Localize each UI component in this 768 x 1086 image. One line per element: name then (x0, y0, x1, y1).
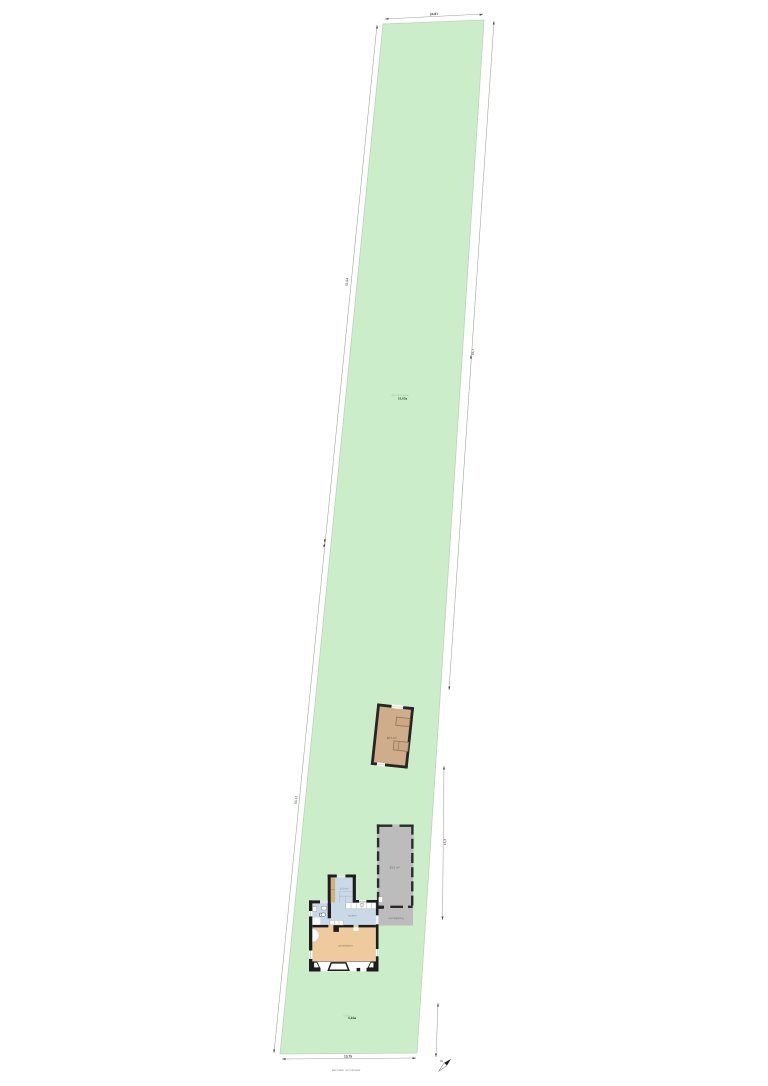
svg-text:4,10a: 4,10a (348, 1016, 356, 1020)
svg-text:alle maten zijn indicatief: alle maten zijn indicatief (332, 1069, 361, 1072)
svg-text:N: N (441, 1059, 443, 1063)
svg-text:50,12: 50,12 (294, 795, 299, 804)
svg-text:29,1 m²: 29,1 m² (390, 865, 400, 869)
svg-text:51,94: 51,94 (345, 277, 350, 286)
svg-text:15,3: 15,3 (443, 839, 447, 845)
svg-text:15,63a: 15,63a (398, 396, 408, 400)
svg-text:24,81: 24,81 (430, 12, 438, 16)
svg-text:66,7: 66,7 (471, 348, 475, 355)
svg-text:overkapping: overkapping (388, 916, 404, 920)
svg-text:keuken: keuken (348, 915, 357, 918)
svg-text:13,75: 13,75 (344, 1055, 352, 1059)
svg-text:15,9 m²: 15,9 m² (340, 887, 349, 890)
svg-text:38,5 m²: 38,5 m² (387, 736, 397, 740)
svg-text:woonkamer: woonkamer (338, 944, 353, 948)
